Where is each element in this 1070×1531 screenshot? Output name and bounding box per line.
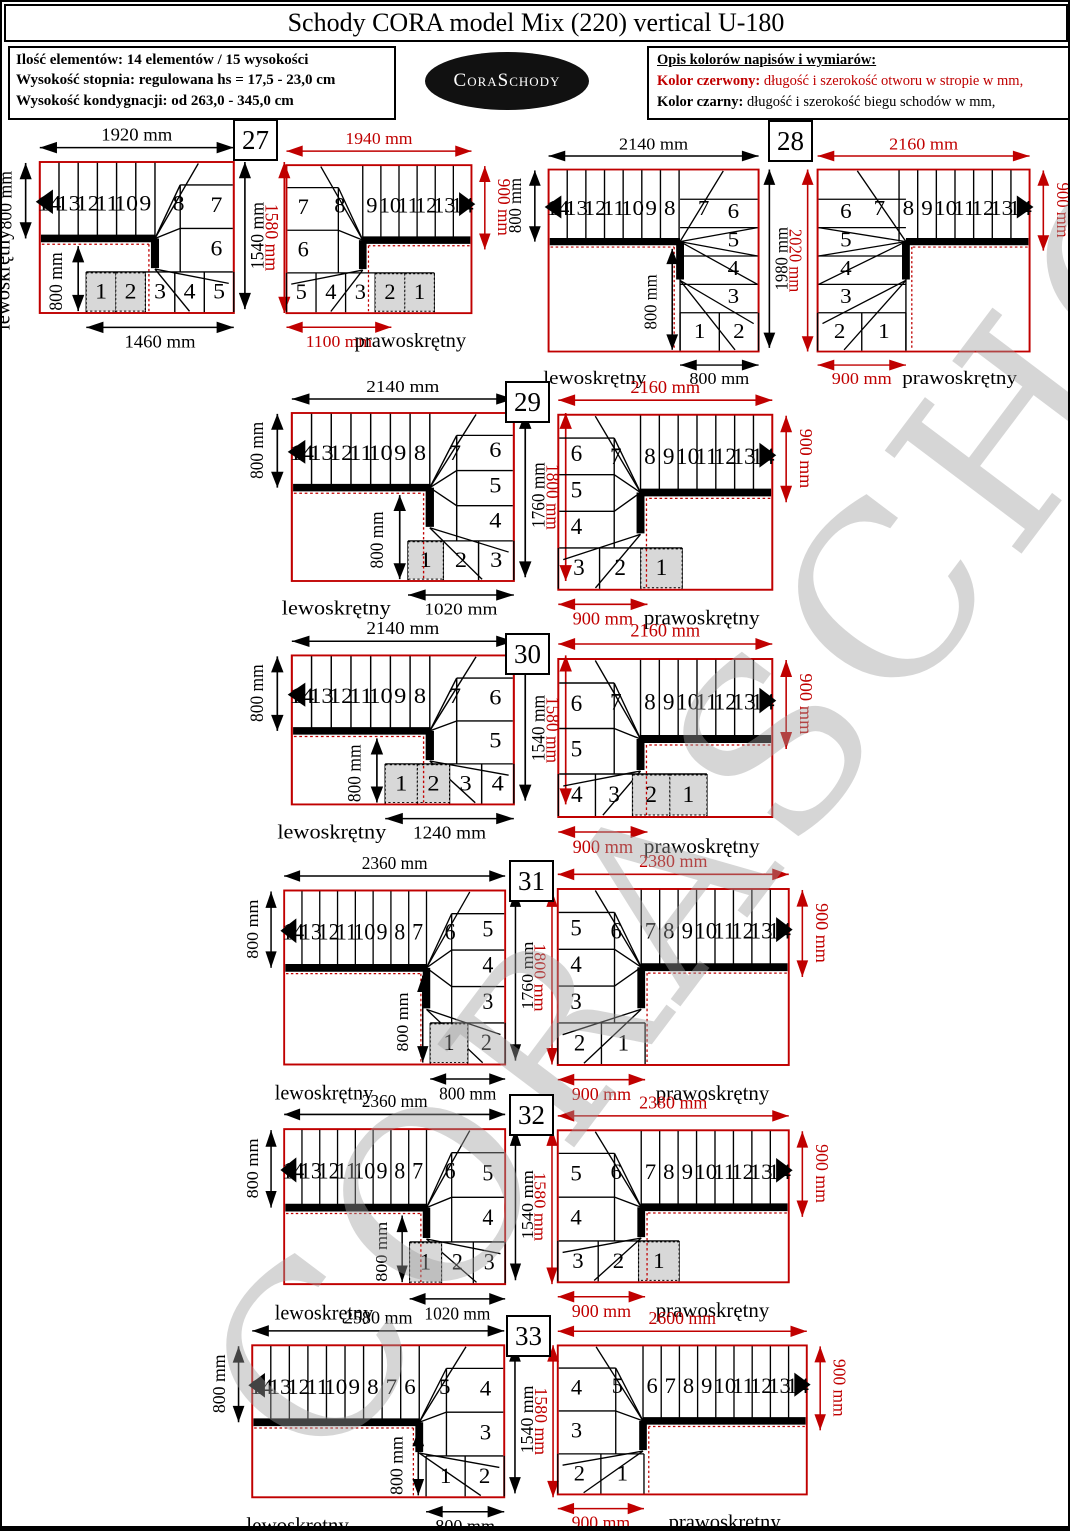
svg-text:800 mm: 800 mm <box>246 664 267 722</box>
svg-text:6: 6 <box>647 1373 658 1398</box>
svg-text:900 mm: 900 mm <box>830 1359 850 1417</box>
legend-black-line: Kolor czarny: długość i szerokość biegu … <box>657 92 1070 113</box>
svg-text:1: 1 <box>653 1248 664 1273</box>
svg-text:800 mm: 800 mm <box>242 1138 262 1198</box>
svg-text:800 mm: 800 mm <box>371 1221 391 1281</box>
svg-text:3: 3 <box>573 555 585 581</box>
svg-text:900 mm: 900 mm <box>812 1144 832 1203</box>
svg-text:900 mm: 900 mm <box>796 429 816 488</box>
svg-text:4: 4 <box>325 279 336 304</box>
svg-text:prawoskrętny: prawoskrętny <box>354 330 466 352</box>
svg-text:2: 2 <box>613 1248 624 1273</box>
svg-text:9: 9 <box>366 192 377 217</box>
svg-text:6: 6 <box>570 691 582 717</box>
svg-text:10: 10 <box>369 441 393 466</box>
stair-catalog-page: Schody CORA model Mix (220) vertical U-1… <box>0 0 1070 1531</box>
svg-text:6: 6 <box>444 918 455 943</box>
svg-text:4: 4 <box>571 1374 582 1399</box>
svg-text:7: 7 <box>385 1374 396 1399</box>
svg-text:10: 10 <box>676 689 699 715</box>
svg-text:prawoskrętny: prawoskrętny <box>903 368 1019 389</box>
svg-text:6: 6 <box>728 199 740 223</box>
variant-number-32: 32 <box>509 1094 554 1136</box>
svg-text:800 mm: 800 mm <box>505 178 526 233</box>
svg-text:8: 8 <box>664 196 676 220</box>
svg-text:800 mm: 800 mm <box>640 274 661 329</box>
svg-text:10: 10 <box>695 1159 718 1184</box>
legend-title: Opis kolorów napisów i wymiarów: <box>657 50 1070 71</box>
svg-text:8: 8 <box>414 684 426 709</box>
svg-text:6: 6 <box>297 237 308 262</box>
svg-text:7: 7 <box>665 1373 676 1398</box>
svg-text:9: 9 <box>140 190 152 215</box>
svg-text:900 mm: 900 mm <box>796 673 816 735</box>
svg-text:6: 6 <box>570 440 582 466</box>
svg-text:1: 1 <box>618 1030 629 1055</box>
svg-text:1: 1 <box>95 278 107 303</box>
svg-text:3: 3 <box>571 1417 582 1442</box>
svg-text:2140 mm: 2140 mm <box>619 134 688 153</box>
svg-text:3: 3 <box>728 284 740 308</box>
svg-text:9: 9 <box>376 1158 387 1184</box>
svg-text:900 mm: 900 mm <box>812 903 832 963</box>
svg-text:9: 9 <box>663 443 675 469</box>
svg-text:1940 mm: 1940 mm <box>345 128 412 148</box>
svg-text:4: 4 <box>728 256 740 280</box>
svg-text:2160 mm: 2160 mm <box>630 377 700 397</box>
svg-text:2380 mm: 2380 mm <box>639 851 707 871</box>
svg-text:2: 2 <box>455 548 467 573</box>
svg-text:4: 4 <box>840 256 852 280</box>
svg-text:2: 2 <box>574 1030 585 1055</box>
svg-text:8: 8 <box>394 918 405 943</box>
info-line-elements: Ilość elementów: 14 elementów / 15 wysok… <box>16 50 388 70</box>
svg-text:1920 mm: 1920 mm <box>101 125 172 144</box>
svg-text:2380 mm: 2380 mm <box>639 1092 707 1112</box>
svg-text:prawoskrętny: prawoskrętny <box>669 1511 782 1531</box>
legend-red-line: Kolor czerwony: długość i szerokość otwo… <box>657 71 1070 92</box>
page-title: Schody CORA model Mix (220) vertical U-1… <box>4 4 1068 42</box>
svg-text:800 mm: 800 mm <box>386 1436 406 1495</box>
svg-text:9: 9 <box>394 684 406 709</box>
svg-text:4: 4 <box>570 513 582 539</box>
svg-text:1: 1 <box>694 319 706 343</box>
svg-text:1: 1 <box>420 1249 431 1275</box>
svg-text:7: 7 <box>610 443 622 469</box>
svg-text:7: 7 <box>645 918 656 943</box>
svg-text:2: 2 <box>384 279 395 304</box>
svg-text:3: 3 <box>460 771 472 796</box>
svg-text:2: 2 <box>428 771 440 796</box>
svg-text:9: 9 <box>348 1374 359 1399</box>
variant-number-27: 27 <box>233 119 278 161</box>
svg-text:9: 9 <box>922 196 934 220</box>
svg-text:3: 3 <box>571 989 582 1014</box>
svg-text:2: 2 <box>574 1460 585 1485</box>
svg-text:3: 3 <box>840 284 852 308</box>
svg-text:2160 mm: 2160 mm <box>889 134 958 153</box>
page-title-text: Schody CORA model Mix (220) vertical U-1… <box>288 8 785 38</box>
svg-text:9: 9 <box>682 1159 693 1184</box>
svg-text:800 mm: 800 mm <box>209 1354 229 1413</box>
info-line-storey-height: Wysokość kondygnacji: od 263,0 - 345,0 c… <box>16 91 388 111</box>
svg-text:1460 mm: 1460 mm <box>125 332 196 351</box>
svg-text:8: 8 <box>394 1158 405 1184</box>
info-line-step-height: Wysokość stopnia: regulowana hs = 17,5 -… <box>16 70 388 90</box>
svg-text:lewoskrętny: lewoskrętny <box>277 820 386 843</box>
svg-text:2360 mm: 2360 mm <box>362 852 428 872</box>
variant-number-33: 33 <box>506 1315 551 1357</box>
svg-text:10: 10 <box>353 1158 375 1184</box>
svg-text:10: 10 <box>714 1373 737 1398</box>
svg-text:7: 7 <box>412 918 423 943</box>
svg-text:2: 2 <box>614 555 626 581</box>
svg-text:800 mm: 800 mm <box>366 511 387 568</box>
svg-text:6: 6 <box>444 1158 455 1184</box>
svg-text:8: 8 <box>663 918 674 943</box>
svg-text:10: 10 <box>353 918 375 943</box>
svg-text:2140 mm: 2140 mm <box>366 377 439 396</box>
svg-text:10: 10 <box>115 190 139 215</box>
svg-text:10: 10 <box>378 192 400 217</box>
svg-text:10: 10 <box>369 684 393 709</box>
svg-text:3: 3 <box>608 782 620 808</box>
svg-text:7: 7 <box>297 194 308 219</box>
svg-text:1: 1 <box>878 319 890 343</box>
svg-text:3: 3 <box>573 1248 584 1273</box>
svg-text:4: 4 <box>571 782 583 808</box>
svg-text:8: 8 <box>683 1373 694 1398</box>
svg-text:5: 5 <box>570 737 582 763</box>
svg-text:7: 7 <box>412 1158 423 1184</box>
svg-text:9: 9 <box>394 441 406 466</box>
svg-text:2160 mm: 2160 mm <box>630 620 700 640</box>
svg-text:8: 8 <box>173 190 185 215</box>
svg-text:2580 mm: 2580 mm <box>344 1307 413 1327</box>
svg-text:800 mm: 800 mm <box>0 171 16 229</box>
svg-text:800 mm: 800 mm <box>242 899 262 958</box>
svg-text:8: 8 <box>414 441 426 466</box>
svg-text:5: 5 <box>571 1160 582 1185</box>
svg-text:1: 1 <box>617 1460 628 1485</box>
svg-text:800 mm: 800 mm <box>344 744 365 802</box>
svg-text:2600 mm: 2600 mm <box>649 1308 717 1328</box>
svg-text:4: 4 <box>571 1204 582 1229</box>
svg-text:5: 5 <box>295 279 306 304</box>
svg-text:9: 9 <box>701 1373 712 1398</box>
svg-text:2: 2 <box>125 278 137 303</box>
svg-text:800 mm: 800 mm <box>46 252 67 310</box>
svg-text:7: 7 <box>645 1159 656 1184</box>
svg-text:900 mm: 900 mm <box>572 1512 631 1531</box>
svg-text:6: 6 <box>840 199 852 223</box>
svg-text:4: 4 <box>571 952 583 977</box>
svg-text:5: 5 <box>571 915 582 940</box>
svg-text:5: 5 <box>570 477 582 503</box>
svg-text:10: 10 <box>324 1374 347 1399</box>
svg-text:1: 1 <box>682 782 694 808</box>
variant-number-30: 30 <box>505 633 550 675</box>
svg-text:3: 3 <box>354 279 365 304</box>
svg-text:1240 mm: 1240 mm <box>413 823 486 842</box>
svg-text:2: 2 <box>452 1249 463 1275</box>
svg-text:lewoskrętny: lewoskrętny <box>246 1513 349 1531</box>
variant-number-29: 29 <box>505 381 550 423</box>
svg-text:1: 1 <box>443 1029 454 1054</box>
svg-text:10: 10 <box>935 196 958 220</box>
svg-text:8: 8 <box>663 1159 674 1184</box>
svg-text:10: 10 <box>621 196 644 220</box>
stair-diagram-28-prawoskretny: 14131211109876543122160 mm900 mm900 mmpr… <box>743 129 1070 407</box>
svg-text:2: 2 <box>834 319 846 343</box>
svg-text:2360 mm: 2360 mm <box>362 1091 428 1111</box>
info-box: Ilość elementów: 14 elementów / 15 wysok… <box>8 46 396 120</box>
svg-text:5: 5 <box>840 228 852 252</box>
svg-text:1: 1 <box>655 555 667 581</box>
svg-text:9: 9 <box>376 918 387 943</box>
svg-text:1: 1 <box>420 548 432 573</box>
svg-text:9: 9 <box>663 689 675 715</box>
svg-text:8: 8 <box>644 689 656 715</box>
variant-number-28: 28 <box>768 120 813 162</box>
svg-text:9: 9 <box>646 196 658 220</box>
svg-text:1: 1 <box>395 771 407 796</box>
variant-number-31: 31 <box>509 860 554 902</box>
svg-text:lewoskrętny: lewoskrętny <box>0 229 15 330</box>
svg-text:1: 1 <box>440 1463 451 1488</box>
svg-text:5: 5 <box>728 228 740 252</box>
color-legend: Opis kolorów napisów i wymiarów: Kolor c… <box>647 46 1070 120</box>
svg-text:9: 9 <box>682 918 693 943</box>
svg-text:6: 6 <box>404 1374 415 1399</box>
svg-text:900 mm: 900 mm <box>1053 183 1070 238</box>
svg-text:2140 mm: 2140 mm <box>366 619 439 638</box>
cora-schody-logo: CoraSchody <box>425 52 589 110</box>
svg-text:10: 10 <box>695 918 718 943</box>
svg-text:10: 10 <box>676 443 699 469</box>
svg-text:3: 3 <box>154 278 166 303</box>
svg-text:800 mm: 800 mm <box>246 422 267 479</box>
logo-text: CoraSchody <box>454 70 561 92</box>
svg-text:8: 8 <box>334 192 345 217</box>
svg-text:8: 8 <box>644 443 656 469</box>
svg-text:1: 1 <box>413 279 424 304</box>
svg-text:800 mm: 800 mm <box>392 992 412 1051</box>
svg-text:4: 4 <box>184 278 196 303</box>
svg-text:8: 8 <box>367 1374 378 1399</box>
